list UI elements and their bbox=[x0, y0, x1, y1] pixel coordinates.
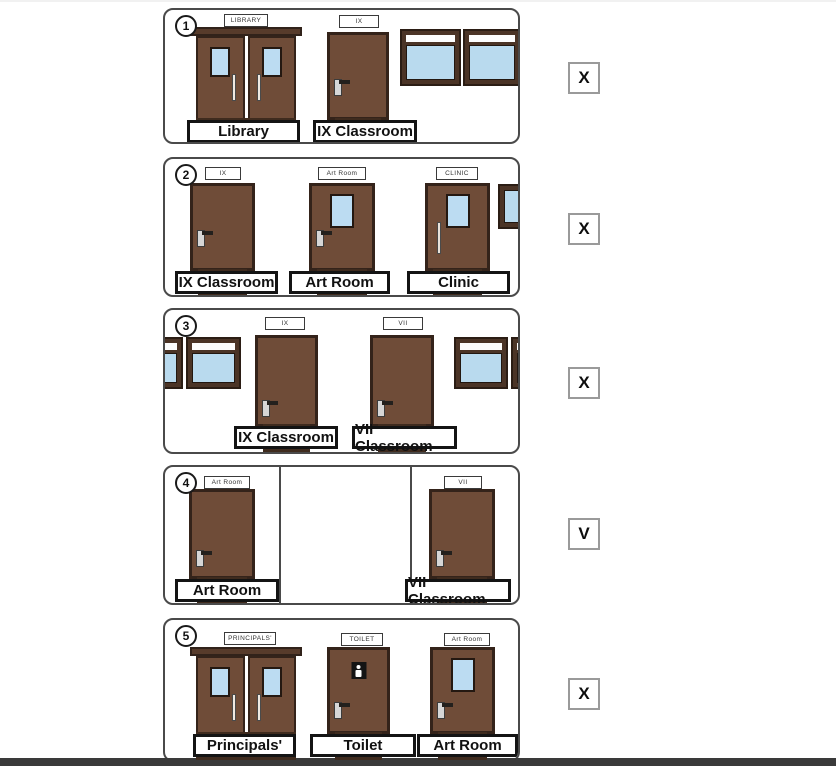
ix-door-sign: IX bbox=[339, 15, 379, 28]
wall-window bbox=[463, 29, 520, 86]
answer-box-2[interactable]: X bbox=[568, 213, 600, 245]
door-handle-bar bbox=[257, 74, 261, 101]
wall-window bbox=[400, 29, 461, 86]
door-handle bbox=[334, 79, 342, 96]
clinic-door bbox=[425, 183, 490, 271]
window-glass bbox=[192, 353, 235, 383]
ix-classroom-label: IX Classroom bbox=[175, 271, 278, 294]
door-leaf-right bbox=[248, 36, 297, 120]
clinic-door-sign: CLINIC bbox=[436, 167, 478, 180]
door-leaf-right bbox=[248, 656, 297, 734]
door-handle-bar bbox=[257, 694, 261, 721]
art-room-door-sign: Art Room bbox=[318, 167, 366, 180]
panel-2-number: 2 bbox=[175, 164, 197, 186]
panel-1-number: 1 bbox=[175, 15, 197, 37]
vii-classroom-label: VII Classroom bbox=[352, 426, 457, 449]
principals-door-sign: PRINCIPALS' bbox=[224, 632, 276, 645]
window-glass bbox=[163, 353, 177, 383]
restroom-person-icon bbox=[351, 662, 366, 679]
vii-door-sign: VII bbox=[444, 476, 482, 489]
wall-window bbox=[186, 337, 241, 389]
door-handle bbox=[377, 400, 385, 417]
window-glass bbox=[517, 353, 520, 383]
wall-window bbox=[454, 337, 508, 389]
answer-box-5[interactable]: X bbox=[568, 678, 600, 710]
door-window bbox=[446, 194, 470, 228]
window-transom bbox=[192, 343, 235, 350]
window-transom bbox=[517, 343, 520, 350]
toilet-door-sign: TOILET bbox=[341, 633, 383, 646]
panel-5: 5 PRINCIPALS' Principals' TOILET bbox=[163, 618, 520, 762]
door-window bbox=[451, 658, 475, 692]
door-window bbox=[262, 667, 282, 697]
bottom-bar bbox=[0, 758, 836, 766]
door-handle-bar bbox=[232, 74, 236, 101]
window-transom bbox=[460, 343, 502, 350]
vii-classroom-door bbox=[370, 335, 434, 427]
door-frame bbox=[190, 647, 302, 656]
art-room-label: Art Room bbox=[175, 579, 279, 602]
art-room-door bbox=[430, 647, 495, 734]
ix-door-sign: IX bbox=[205, 167, 241, 180]
window-transom bbox=[469, 35, 515, 42]
art-room-label: Art Room bbox=[289, 271, 390, 294]
door-handle bbox=[334, 702, 342, 719]
door-handle bbox=[262, 400, 270, 417]
door-window bbox=[210, 47, 230, 77]
toilet-label: Toilet bbox=[310, 734, 416, 757]
ix-classroom-label: IX Classroom bbox=[313, 120, 417, 143]
panel-5-number: 5 bbox=[175, 625, 197, 647]
art-room-door bbox=[189, 489, 255, 579]
window-transom bbox=[406, 35, 455, 42]
clinic-label: Clinic bbox=[407, 271, 510, 294]
ix-classroom-label: IX Classroom bbox=[234, 426, 338, 449]
library-double-door bbox=[190, 27, 302, 120]
panel-1: 1 LIBRARY Library IX IX Classroom bbox=[163, 8, 520, 144]
panel-4-number: 4 bbox=[175, 472, 197, 494]
door-handle bbox=[197, 230, 205, 247]
door-window bbox=[330, 194, 354, 228]
door-handle-bar bbox=[232, 694, 236, 721]
wall-window-partial bbox=[511, 337, 520, 389]
ix-classroom-door bbox=[255, 335, 318, 427]
toilet-door bbox=[327, 647, 390, 734]
ix-classroom-door bbox=[190, 183, 255, 271]
door-handle bbox=[316, 230, 324, 247]
door-window bbox=[210, 667, 230, 697]
panel-3-number: 3 bbox=[175, 315, 197, 337]
art-room-door bbox=[309, 183, 375, 271]
window-transom bbox=[163, 343, 177, 350]
wall-window-partial bbox=[163, 337, 183, 389]
ix-door-sign: IX bbox=[265, 317, 305, 330]
door-handle bbox=[196, 550, 204, 567]
wall-window-partial bbox=[498, 184, 520, 229]
art-room-door-sign: Art Room bbox=[204, 476, 250, 489]
worksheet-page: 1 LIBRARY Library IX IX Classroom bbox=[0, 0, 836, 769]
wall-divider bbox=[279, 465, 281, 605]
window-glass bbox=[504, 190, 520, 223]
answer-box-4[interactable]: V bbox=[568, 518, 600, 550]
door-handle bbox=[437, 702, 445, 719]
top-edge-line bbox=[0, 0, 836, 2]
window-glass bbox=[406, 45, 455, 80]
answer-box-1[interactable]: X bbox=[568, 62, 600, 94]
door-pull-bar bbox=[437, 222, 441, 254]
door-frame bbox=[190, 27, 302, 36]
door-handle bbox=[436, 550, 444, 567]
door-leaf-left bbox=[196, 656, 245, 734]
vii-door-sign: VII bbox=[383, 317, 423, 330]
principals-double-door bbox=[190, 647, 302, 734]
vii-classroom-label: VII Classroom bbox=[405, 579, 511, 602]
library-door-sign: LIBRARY bbox=[224, 14, 268, 27]
window-glass bbox=[460, 353, 502, 383]
vii-classroom-door bbox=[429, 489, 495, 579]
principals-label: Principals' bbox=[193, 734, 296, 757]
panel-3: 3 IX IX Classroom VII VII Classroom bbox=[163, 308, 520, 454]
art-room-door-sign: Art Room bbox=[444, 633, 490, 646]
door-window bbox=[262, 47, 282, 77]
panel-4: 4 Art Room Art Room VII VII Classroom bbox=[163, 465, 520, 605]
answer-box-3[interactable]: X bbox=[568, 367, 600, 399]
art-room-label: Art Room bbox=[417, 734, 518, 757]
panel-2: 2 IX IX Classroom Art Room Art Room CLIN… bbox=[163, 157, 520, 297]
window-glass bbox=[469, 45, 515, 80]
library-label: Library bbox=[187, 120, 300, 143]
ix-classroom-door bbox=[327, 32, 389, 120]
door-leaf-left bbox=[196, 36, 245, 120]
